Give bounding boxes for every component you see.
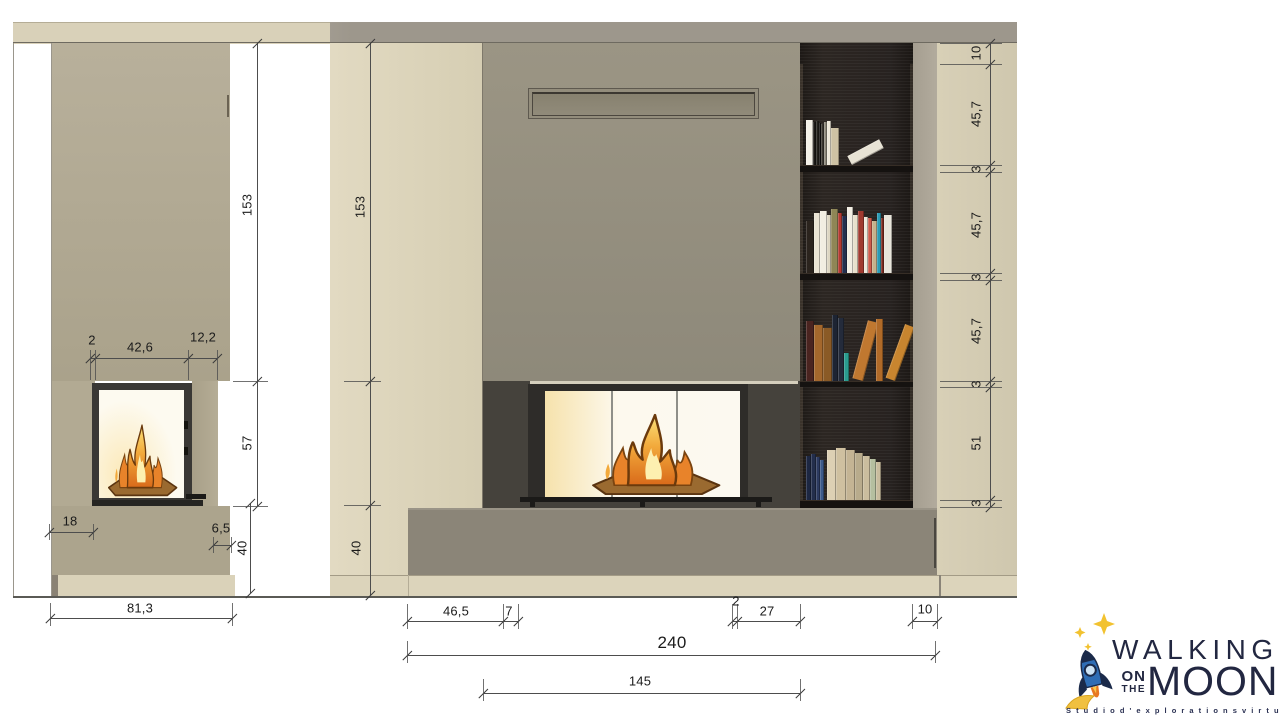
extension-line [231,537,232,553]
dimension-label: 10 [918,602,933,617]
dimension-label: 51 [969,436,984,451]
dimension-label: 153 [240,194,255,216]
extension-line [188,350,189,380]
extension-line [912,604,913,629]
extension-line [213,537,214,553]
extension-line [217,350,218,380]
dimension-label: 81,3 [127,601,153,616]
dimension-label: 2 [732,594,739,609]
logo-word-moon: MOON [1147,658,1279,705]
dimension-label: 42,6 [127,340,153,355]
dimension-line [250,503,251,593]
dimension-label: 3 [969,380,984,387]
dimension-label: 2 [88,333,95,348]
dimension-label: 10 [969,46,984,61]
extension-line [344,505,381,506]
dimension-label: 40 [235,541,250,556]
extension-line [407,604,408,629]
extension-line [937,604,938,629]
extension-line [940,43,1002,44]
dimension-line [732,621,800,622]
extension-line [95,350,96,380]
extension-line [93,524,94,540]
dimension-label: 45,7 [969,212,984,238]
dimension-line [912,621,937,622]
extension-line [49,524,50,540]
walking-on-the-moon-logo: WALKING ON THE MOON S t u d i o d ' e x … [1062,600,1280,720]
dimension-label: 145 [629,674,651,689]
dimension-label: 153 [353,196,368,218]
logo-word-on-the: ON THE [1120,670,1146,695]
extension-line [233,381,268,382]
dimension-line [50,618,232,619]
extension-line [90,350,91,380]
extension-line [800,679,801,701]
star-icon [1075,627,1086,638]
extension-line [940,507,1002,508]
dimension-label: 40 [349,541,364,556]
extension-line [483,679,484,701]
dimension-label: 6,5 [212,521,231,536]
dimension-label: 45,7 [969,101,984,127]
dimension-label: 240 [658,633,687,653]
extension-line [50,603,51,626]
dimension-line [257,43,258,506]
dimension-label: 7 [505,604,512,619]
extension-line [940,64,1002,65]
extension-line [344,381,381,382]
dimension-line [483,693,800,694]
dimension-line [370,43,371,595]
extension-line [232,603,233,626]
dimension-label: 27 [760,604,775,619]
dimension-label: 45,7 [969,318,984,344]
drawing-canvas: 15357242,612,2186,54081,31534046,5722710… [0,0,1280,720]
star-icon [1093,613,1115,635]
dimension-line [49,532,93,533]
dimension-label: 12,2 [190,330,216,345]
extension-line [233,506,268,507]
logo-tagline: S t u d i o d ' e x p l o r a t i o n s … [1066,706,1278,715]
dimension-label: 3 [969,165,984,172]
dimension-label: 46,5 [443,604,469,619]
dimension-label: 3 [969,499,984,506]
extension-line [800,604,801,629]
extension-line [518,604,519,629]
extension-line [503,604,504,629]
star-icon [1084,643,1092,651]
dimension-label: 18 [63,514,78,529]
dimension-label: 57 [240,436,255,451]
dimension-label: 3 [969,273,984,280]
extension-line [935,641,936,663]
extension-line [407,641,408,663]
dimension-line [90,358,217,359]
dimension-line [407,655,935,656]
